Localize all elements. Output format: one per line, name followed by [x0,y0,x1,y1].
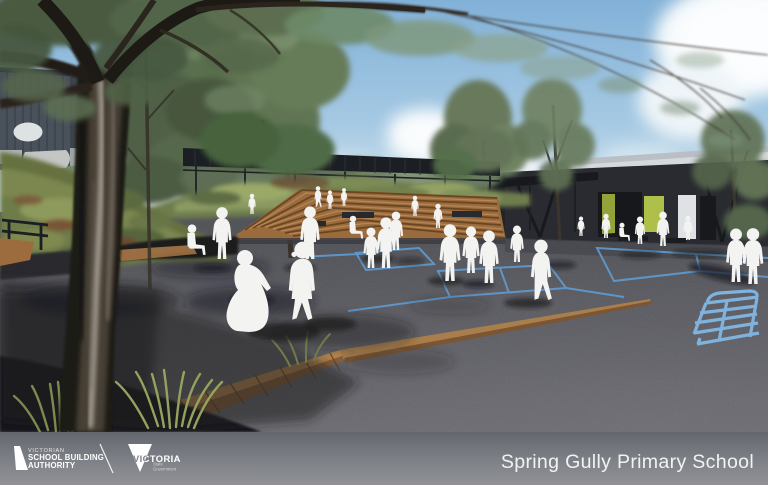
svg-text:AUTHORITY: AUTHORITY [28,461,76,470]
svg-text:Government: Government [153,467,177,472]
svg-text:Spring Gully Primary School: Spring Gully Primary School [501,451,754,473]
